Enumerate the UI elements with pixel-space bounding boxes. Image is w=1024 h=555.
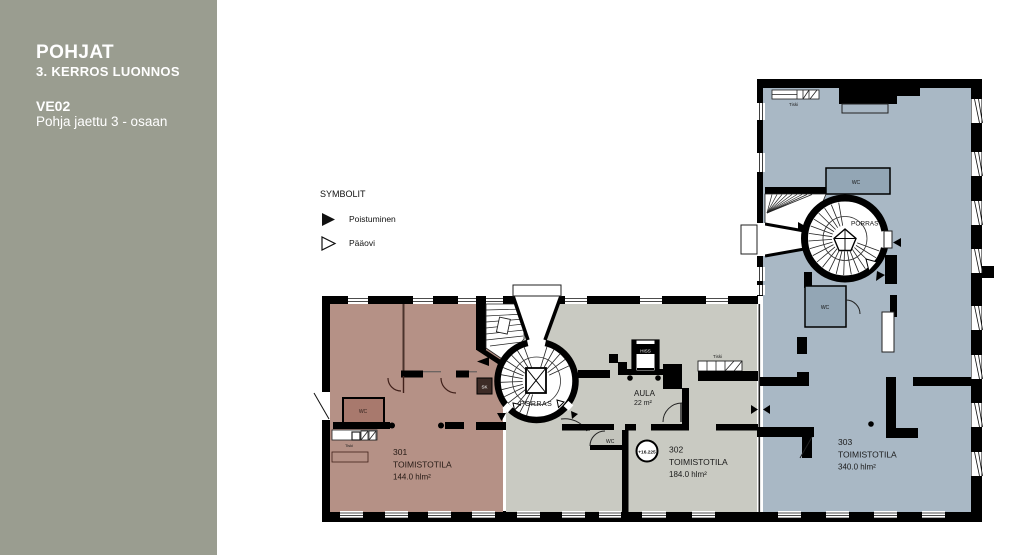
svg-text:Tiski: Tiski — [713, 354, 722, 359]
svg-text:Pääovi: Pääovi — [349, 238, 375, 248]
svg-text:PORRAS: PORRAS — [520, 401, 553, 408]
svg-text:PORRAS: PORRAS — [851, 221, 879, 228]
svg-text:AULA: AULA — [634, 389, 656, 398]
svg-text:SK: SK — [481, 385, 487, 390]
svg-text:301: 301 — [393, 447, 407, 457]
svg-text:HISS: HISS — [640, 349, 651, 354]
svg-text:Tiski: Tiski — [789, 102, 798, 107]
svg-text:340.0 hlm²: 340.0 hlm² — [838, 463, 876, 472]
svg-text:22 m²: 22 m² — [634, 400, 653, 407]
svg-text:WC: WC — [852, 180, 861, 186]
svg-text:SYMBOLIT: SYMBOLIT — [320, 189, 366, 199]
svg-text:TOIMISTOTILA: TOIMISTOTILA — [838, 450, 897, 460]
svg-text:144.0 hlm²: 144.0 hlm² — [393, 473, 431, 482]
svg-text:303: 303 — [838, 437, 852, 447]
svg-text:TOIMISTOTILA: TOIMISTOTILA — [669, 457, 728, 467]
svg-text:+16.225: +16.225 — [638, 450, 656, 456]
svg-text:Poistuminen: Poistuminen — [349, 214, 396, 224]
svg-text:Tiski: Tiski — [345, 443, 353, 448]
svg-text:WC: WC — [821, 305, 830, 311]
svg-text:WC: WC — [606, 439, 615, 445]
svg-text:184.0 hlm²: 184.0 hlm² — [669, 470, 707, 479]
svg-text:302: 302 — [669, 445, 683, 455]
svg-text:WC: WC — [359, 409, 368, 415]
svg-text:TOIMISTOTILA: TOIMISTOTILA — [393, 460, 452, 470]
